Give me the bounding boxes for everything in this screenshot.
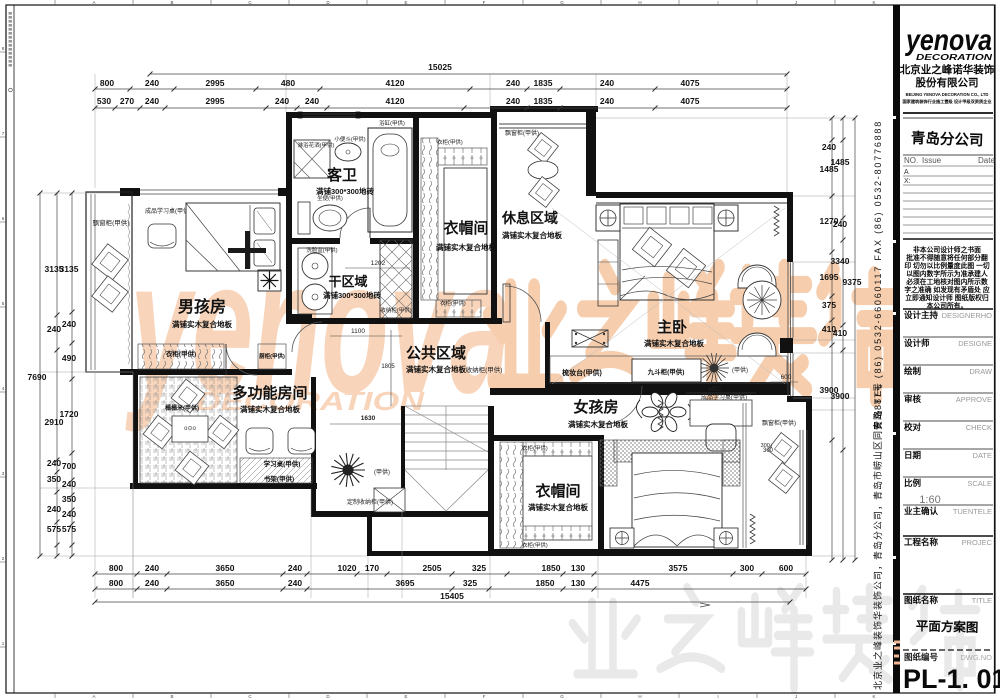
svg-text:洗脸盆(甲供): 洗脸盆(甲供) [306, 246, 337, 254]
svg-text:H: H [638, 694, 641, 699]
svg-text:240: 240 [305, 96, 319, 106]
svg-text:4075: 4075 [681, 78, 700, 88]
svg-text:女孩房: 女孩房 [573, 398, 618, 416]
svg-text:衣帽间: 衣帽间 [443, 219, 488, 237]
svg-text:4120: 4120 [386, 78, 405, 88]
svg-text:270: 270 [120, 96, 134, 106]
svg-text:3900: 3900 [831, 391, 850, 401]
svg-text:必须在工地核对图内所示数: 必须在工地核对图内所示数 [905, 277, 988, 286]
svg-text:3695: 3695 [396, 578, 415, 588]
svg-text:榻榻米(甲供): 榻榻米(甲供) [164, 404, 199, 412]
svg-text:满铺实木复合地板: 满铺实木复合地板 [406, 364, 466, 374]
svg-text:15025: 15025 [428, 62, 452, 72]
svg-text:3650: 3650 [216, 578, 235, 588]
svg-text:480: 480 [281, 78, 295, 88]
svg-text:575: 575 [62, 524, 76, 534]
svg-text:DWG.NO: DWG.NO [960, 653, 992, 662]
svg-text:130: 130 [571, 578, 585, 588]
svg-text:衣柜(甲供): 衣柜(甲供) [522, 541, 548, 549]
svg-text:(甲供): (甲供) [732, 366, 748, 374]
svg-text:300」: 300」 [761, 443, 776, 449]
svg-text:600: 600 [781, 374, 792, 381]
svg-text:240: 240 [288, 578, 302, 588]
svg-text:满铺300*300地砖: 满铺300*300地砖 [316, 186, 374, 196]
svg-text:DESIGNERHO: DESIGNERHO [942, 311, 993, 320]
svg-text:325: 325 [472, 563, 486, 573]
svg-text:F: F [483, 0, 486, 5]
svg-text:公共区域: 公共区域 [406, 344, 466, 362]
svg-text:240: 240 [145, 78, 159, 88]
svg-text:业主确认: 业主确认 [904, 506, 939, 516]
svg-text:1850: 1850 [542, 563, 561, 573]
svg-text:1485: 1485 [831, 157, 850, 167]
svg-text:o⊙o: o⊙o [184, 426, 196, 432]
svg-text:240: 240 [822, 142, 836, 152]
svg-text:图纸编号: 图纸编号 [904, 652, 939, 662]
svg-text:7690: 7690 [28, 372, 47, 382]
svg-text:A: A [92, 694, 95, 699]
svg-text:240: 240 [600, 78, 614, 88]
svg-text:240: 240 [47, 458, 61, 468]
svg-text:F: F [483, 694, 486, 699]
svg-text:主卧: 主卧 [657, 318, 687, 336]
svg-text:DRAW: DRAW [969, 367, 993, 376]
svg-text:满铺实木复合地板: 满铺实木复合地板 [172, 319, 232, 329]
svg-text:1835: 1835 [534, 78, 553, 88]
svg-text:K: K [872, 694, 875, 699]
svg-text:X:: X: [904, 178, 911, 185]
svg-text:客卫: 客卫 [326, 166, 357, 184]
svg-text:衣柜(甲供): 衣柜(甲供) [437, 138, 463, 146]
svg-text:600: 600 [779, 563, 793, 573]
svg-text:530: 530 [97, 96, 111, 106]
svg-text:休息区域: 休息区域 [501, 210, 558, 226]
svg-text:1805: 1805 [381, 364, 395, 370]
svg-text:绘制: 绘制 [904, 366, 922, 376]
svg-text:240: 240 [62, 479, 76, 489]
svg-text:印 切勿以比例量度此图 一切: 印 切勿以比例量度此图 一切 [904, 261, 990, 270]
svg-text:240: 240 [833, 219, 847, 229]
svg-text:飘窗柜(甲供): 飘窗柜(甲供) [93, 218, 130, 227]
svg-text:TUENTELE: TUENTELE [953, 507, 992, 516]
svg-text:130: 130 [571, 563, 585, 573]
svg-text:240: 240 [47, 324, 61, 334]
svg-text:厨柜(甲供): 厨柜(甲供) [259, 352, 285, 360]
svg-text:定制收纳柜(甲供): 定制收纳柜(甲供) [347, 498, 393, 506]
svg-text:成品学习桌(甲供): 成品学习桌(甲供) [701, 393, 747, 401]
svg-text:图纸名称: 图纸名称 [904, 595, 939, 605]
svg-text:梳妆台(甲供): 梳妆台(甲供) [562, 368, 602, 377]
svg-text:3575: 3575 [669, 563, 688, 573]
svg-text:800: 800 [100, 78, 114, 88]
svg-text:1:60: 1:60 [919, 494, 940, 506]
svg-text:Date: Date [978, 156, 995, 165]
svg-text:设计主持: 设计主持 [904, 310, 939, 320]
svg-text:浴缸(甲供): 浴缸(甲供) [379, 119, 405, 127]
svg-text:审核: 审核 [904, 394, 922, 404]
svg-text:3340: 3340 [831, 256, 850, 266]
svg-text:满铺实木复合地板: 满铺实木复合地板 [644, 338, 704, 348]
svg-text:(甲供): (甲供) [374, 468, 390, 476]
svg-text:350: 350 [47, 474, 61, 484]
svg-text:书架(甲供): 书架(甲供) [264, 474, 294, 483]
svg-text:比例: 比例 [904, 478, 922, 488]
svg-text:日期: 日期 [904, 450, 922, 460]
svg-text:字之准确 如发现有矛盾处 应: 字之准确 如发现有矛盾处 应 [904, 285, 990, 294]
svg-text:K: K [872, 0, 875, 5]
svg-text:3135: 3135 [60, 264, 79, 274]
svg-text:TITLE: TITLE [972, 596, 992, 605]
svg-text:学习桌(甲供): 学习桌(甲供) [264, 459, 301, 468]
svg-text:收纳柜(甲供): 收纳柜(甲供) [466, 365, 503, 374]
svg-text:干区域: 干区域 [328, 274, 367, 289]
svg-text:1100: 1100 [351, 328, 365, 335]
svg-text:A: A [92, 0, 95, 5]
svg-text:I: I [717, 0, 718, 5]
svg-text:满铺实木复合地板: 满铺实木复合地板 [568, 419, 628, 429]
svg-text:1630: 1630 [361, 415, 376, 422]
svg-text:以图内数字所示为准承建人: 以图内数字所示为准承建人 [906, 269, 988, 278]
svg-text:300: 300 [740, 563, 754, 573]
svg-text:满铺实木复合地板: 满铺实木复合地板 [436, 242, 496, 252]
svg-text:15405: 15405 [440, 591, 464, 601]
svg-text:1202: 1202 [371, 260, 386, 267]
svg-text:700: 700 [62, 461, 76, 471]
svg-text:240: 240 [600, 96, 614, 106]
svg-text:飘窗柜(甲供): 飘窗柜(甲供) [505, 129, 539, 137]
svg-text:北京业之峰诺华装饰: 北京业之峰诺华装饰 [900, 63, 995, 76]
svg-text:BEIJING YENOVA DECORATION CO.,: BEIJING YENOVA DECORATION CO., LTD [906, 92, 989, 97]
svg-text:I: I [717, 694, 718, 699]
svg-text:A: A [904, 169, 909, 176]
svg-text:PL-1. 01: PL-1. 01 [903, 664, 1000, 694]
svg-text:衣帽间: 衣帽间 [535, 482, 580, 500]
svg-text:平面方案图: 平面方案图 [916, 618, 979, 635]
svg-text:设计师: 设计师 [904, 338, 930, 348]
svg-text:NO.: NO. [904, 156, 918, 165]
svg-text:小便斗(甲供): 小便斗(甲供) [334, 135, 365, 143]
svg-text:Issue: Issue [922, 156, 942, 165]
svg-text:股份有限公司: 股份有限公司 [916, 76, 979, 89]
svg-text:240: 240 [145, 563, 159, 573]
svg-text:800: 800 [109, 563, 123, 573]
svg-text:B: B [170, 694, 173, 699]
svg-text:G: G [560, 694, 564, 699]
svg-text:240: 240 [145, 96, 159, 106]
svg-text:1020: 1020 [338, 563, 357, 573]
svg-text:DATE: DATE [973, 451, 992, 460]
svg-text:DESIGNE: DESIGNE [958, 339, 992, 348]
svg-text:满铺实木复合地板: 满铺实木复合地板 [528, 502, 588, 512]
svg-text:多功能房间: 多功能房间 [232, 384, 307, 402]
svg-text:PROJEC: PROJEC [962, 538, 993, 547]
svg-text:G: G [560, 0, 564, 5]
svg-text:B: B [170, 0, 173, 5]
svg-text:收纳柜(甲供): 收纳柜(甲供) [380, 306, 411, 314]
svg-text:E: E [404, 694, 407, 699]
svg-text:325: 325 [463, 578, 477, 588]
svg-text:男孩房: 男孩房 [178, 297, 226, 316]
svg-text:1400: 1400 [707, 387, 721, 393]
svg-text:4120: 4120 [386, 96, 405, 106]
svg-text:九斗柜(甲供): 九斗柜(甲供) [647, 367, 685, 376]
svg-text:SCALE: SCALE [967, 479, 992, 488]
svg-text:淋浴花洒(甲供): 淋浴花洒(甲供) [298, 141, 335, 149]
svg-text:校对: 校对 [904, 422, 922, 432]
svg-text:满铺实木复合地板: 满铺实木复合地板 [502, 230, 562, 240]
svg-text:青岛 TEL (86) 0532-66060117 FA: 青岛 TEL (86) 0532-66060117 FAX (86) 0532-… [872, 120, 883, 430]
svg-text:1695: 1695 [820, 272, 839, 282]
svg-text:1850: 1850 [536, 578, 555, 588]
svg-text:H: H [638, 0, 641, 5]
svg-text:490: 490 [62, 353, 76, 363]
svg-text:4075: 4075 [681, 96, 700, 106]
svg-text:240: 240 [275, 96, 289, 106]
svg-text:240: 240 [47, 504, 61, 514]
svg-text:3650: 3650 [216, 563, 235, 573]
svg-text:1835: 1835 [534, 96, 553, 106]
svg-text:国家建筑装饰行业施工壹级 设计甲级双资质企业: 国家建筑装饰行业施工壹级 设计甲级双资质企业 [902, 98, 992, 105]
svg-text:4475: 4475 [631, 578, 650, 588]
svg-text:240: 240 [145, 578, 159, 588]
svg-text:9375: 9375 [843, 277, 862, 287]
svg-text:375: 375 [822, 300, 836, 310]
svg-text:立即通知设计师 图纸版权归: 立即通知设计师 图纸版权归 [905, 293, 989, 302]
svg-text:满铺300*300地砖: 满铺300*300地砖 [323, 290, 381, 300]
svg-text:DECORATION: DECORATION [916, 53, 992, 62]
svg-text:APPROVE: APPROVE [956, 395, 992, 404]
svg-text:飘窗柜(甲供): 飘窗柜(甲供) [762, 419, 796, 427]
svg-text:衣柜(甲供): 衣柜(甲供) [522, 444, 548, 452]
svg-text:满铺实木复合地板: 满铺实木复合地板 [240, 404, 300, 414]
svg-text:成品学习桌(甲供): 成品学习桌(甲供) [145, 207, 191, 215]
svg-text:J: J [795, 0, 797, 5]
svg-text:240: 240 [288, 563, 302, 573]
svg-text:240: 240 [62, 319, 76, 329]
svg-text:350: 350 [62, 494, 76, 504]
svg-text:E: E [404, 0, 407, 5]
svg-text:非本公司设计师之书面: 非本公司设计师之书面 [913, 245, 981, 254]
svg-text:240: 240 [62, 509, 76, 519]
svg-text:CHECK: CHECK [966, 423, 992, 432]
svg-text:J: J [795, 694, 797, 699]
svg-text:工程名称: 工程名称 [904, 537, 939, 547]
svg-text:衣柜(甲供): 衣柜(甲供) [166, 349, 196, 358]
svg-text:575: 575 [47, 524, 61, 534]
svg-text:2995: 2995 [206, 78, 225, 88]
svg-text:批准不得随意将任何部分翻: 批准不得随意将任何部分翻 [906, 253, 988, 262]
svg-text:410: 410 [833, 328, 847, 338]
svg-text:衣柜(甲供): 衣柜(甲供) [440, 299, 466, 307]
svg-text:240: 240 [506, 78, 520, 88]
svg-text:1720: 1720 [60, 409, 79, 419]
svg-text:2995: 2995 [206, 96, 225, 106]
svg-text:2505: 2505 [423, 563, 442, 573]
svg-text:170: 170 [365, 563, 379, 573]
svg-text:800: 800 [109, 578, 123, 588]
svg-text:240: 240 [506, 96, 520, 106]
